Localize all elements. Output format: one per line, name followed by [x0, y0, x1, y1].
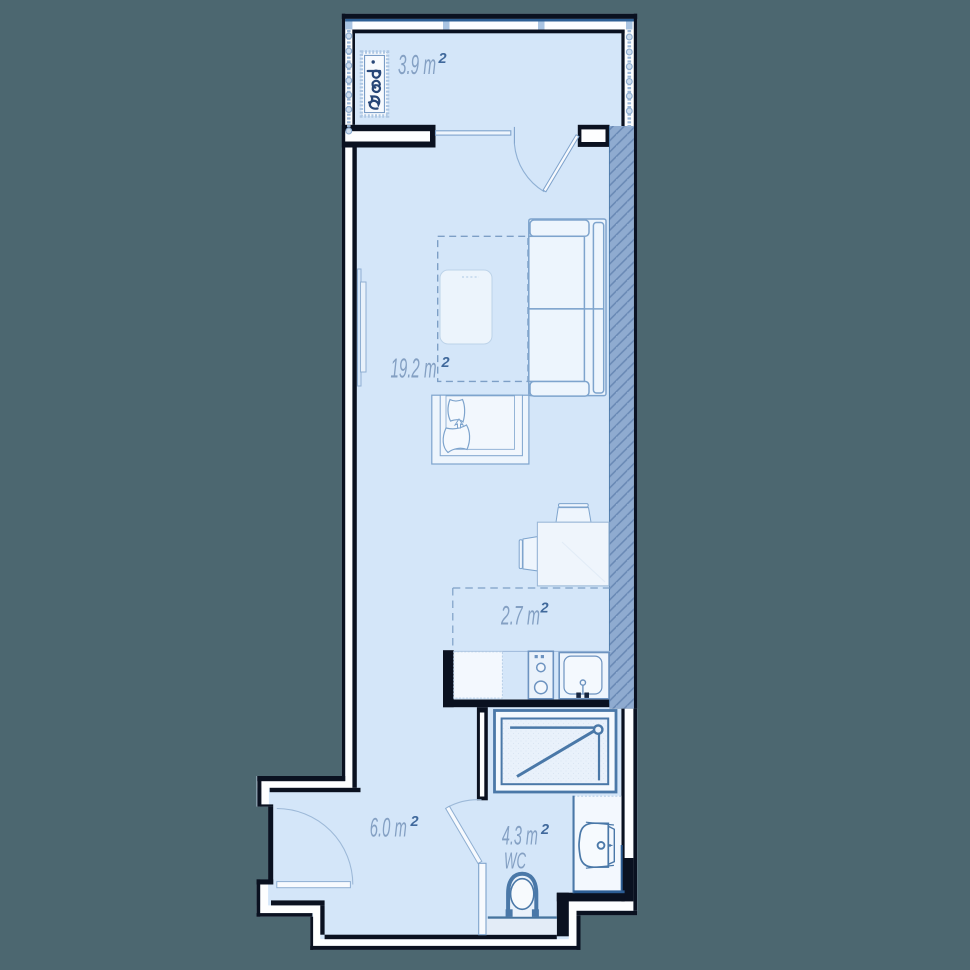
- svg-text:2: 2: [540, 601, 549, 617]
- svg-text:4.3 m: 4.3 m: [502, 821, 538, 851]
- svg-text:2: 2: [438, 51, 447, 67]
- svg-text:19.2 m: 19.2 m: [391, 353, 437, 384]
- svg-text:WC: WC: [504, 848, 526, 874]
- svg-text:2: 2: [540, 822, 549, 838]
- svg-text:2: 2: [441, 355, 450, 371]
- svg-text:2.7 m: 2.7 m: [500, 601, 540, 631]
- svg-text:6.0 m: 6.0 m: [370, 813, 407, 843]
- svg-text:3.9 m: 3.9 m: [398, 49, 436, 80]
- svg-text:2: 2: [410, 814, 419, 830]
